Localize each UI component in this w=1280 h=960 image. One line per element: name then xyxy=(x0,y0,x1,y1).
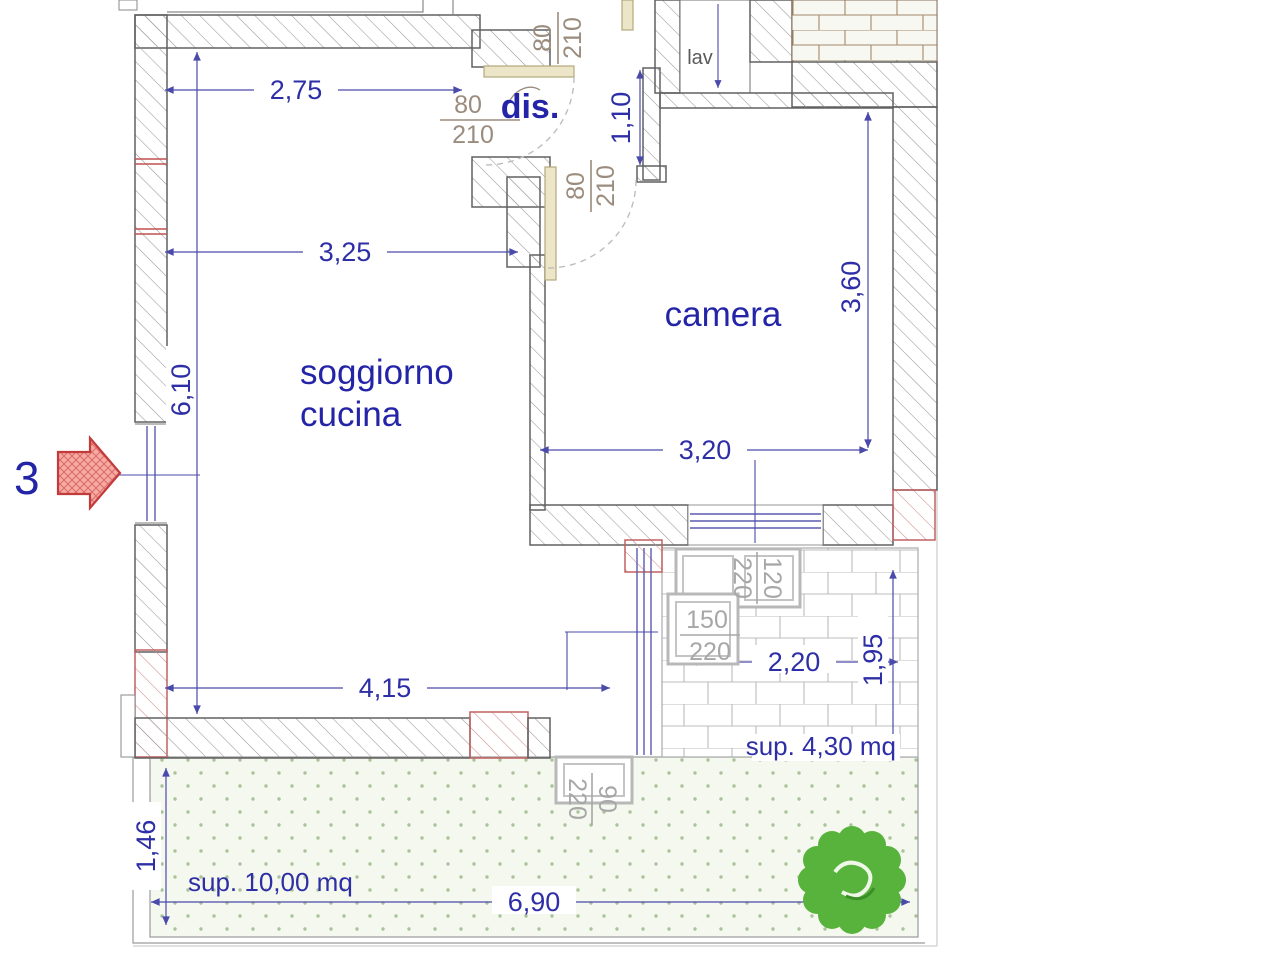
dim-label: 3,60 xyxy=(836,261,866,314)
wall-segment xyxy=(135,525,167,652)
floor-plan-page: 6,90 1,46 sup. 10,00 mq 2,20 xyxy=(0,0,1280,960)
door-size-den: 210 xyxy=(452,121,494,149)
wall-segment xyxy=(135,15,167,422)
door-size-num: 80 xyxy=(562,172,590,200)
terrace-area: 2,20 1,95 120 220 150 220 sup. 4,30 mq xyxy=(662,548,918,761)
door-leaf xyxy=(484,66,574,77)
door-leaf xyxy=(545,167,556,280)
door-size-num: 150 xyxy=(686,606,728,634)
dim-soggiorno-mid: 3,25 xyxy=(165,236,518,267)
wall-segment xyxy=(637,166,666,182)
dim-label: 1,10 xyxy=(606,92,636,145)
terrace-glazing xyxy=(637,548,651,755)
room-label-soggiorno-line2: cucina xyxy=(300,395,402,434)
wall-segment xyxy=(750,0,792,62)
room-label-soggiorno-line1: soggiorno xyxy=(300,353,454,392)
dim-soggiorno-height: 6,10 xyxy=(166,346,196,434)
dim-label: 4,15 xyxy=(359,673,412,703)
dim-camera-height: 3,60 xyxy=(836,243,866,331)
door-size-den: 210 xyxy=(592,165,620,207)
wall-segment xyxy=(823,505,893,545)
dim-garden-width-label: 6,90 xyxy=(508,887,561,917)
garden-area: 6,90 1,46 sup. 10,00 mq xyxy=(131,757,925,943)
dim-terrace-width-label: 2,20 xyxy=(768,647,821,677)
wall-segment xyxy=(135,718,470,758)
brick-wall-section xyxy=(792,0,937,62)
dim-label: 3,20 xyxy=(679,435,732,465)
garden-area-label: sup. 10,00 mq xyxy=(188,867,353,897)
room-label-camera: camera xyxy=(665,295,782,334)
entrance-window xyxy=(135,423,167,524)
wall-segment xyxy=(655,0,680,93)
dim-soggiorno-top: 2,75 xyxy=(165,74,462,105)
wall-segment xyxy=(135,15,480,48)
door-size-terrace-window: 120 220 xyxy=(728,552,786,604)
door-leaf xyxy=(622,0,633,30)
cut-outline xyxy=(167,0,423,12)
dim-terrace-height-label: 1,95 xyxy=(858,634,888,687)
terrace-area-label: sup. 4,30 mq xyxy=(746,731,896,761)
dim-label: 6,10 xyxy=(166,364,196,417)
dim-label: 3,25 xyxy=(319,237,372,267)
door-size-num: 120 xyxy=(758,557,786,599)
room-label-dis: dis. xyxy=(501,88,560,126)
wall-segment xyxy=(530,255,545,510)
room-label-lav: lav xyxy=(687,47,713,69)
cut-outline xyxy=(119,0,137,10)
door-size-num: 90 xyxy=(593,785,621,813)
dim-garden-height-label: 1,46 xyxy=(131,820,161,873)
dim-label: 2,75 xyxy=(270,75,323,105)
dim-garden-height: 1,46 xyxy=(131,802,161,890)
door-size-den: 220 xyxy=(689,638,731,666)
dim-camera-width: 3,20 xyxy=(540,434,868,465)
door-size-den: 220 xyxy=(563,778,591,820)
door-size-camera: 80 210 xyxy=(562,160,620,212)
wall-segment xyxy=(660,93,893,108)
wall-segment xyxy=(530,505,688,545)
door-size-num: 80 xyxy=(529,24,557,52)
door-size-den: 220 xyxy=(728,557,756,599)
dim-passage: 1,10 xyxy=(606,78,636,158)
dim-soggiorno-bottom: 4,15 xyxy=(165,672,610,703)
wall-segment-red xyxy=(470,712,528,758)
wall-pillar-red xyxy=(893,490,935,540)
wall-segment xyxy=(507,177,540,267)
entrance-arrow-icon xyxy=(58,438,120,508)
floor-plan-svg: 6,90 1,46 sup. 10,00 mq 2,20 xyxy=(0,0,1280,960)
wall-ledge xyxy=(121,695,135,757)
window-opening xyxy=(136,423,166,524)
dim-terrace-height: 1,95 xyxy=(858,616,888,704)
door-size-den: 210 xyxy=(559,17,587,59)
wall-segment xyxy=(528,718,550,758)
wall-segment xyxy=(893,107,937,490)
unit-number: 3 xyxy=(14,452,40,504)
entrance-marker: 3 xyxy=(14,438,120,508)
door-size-num: 80 xyxy=(454,91,482,119)
